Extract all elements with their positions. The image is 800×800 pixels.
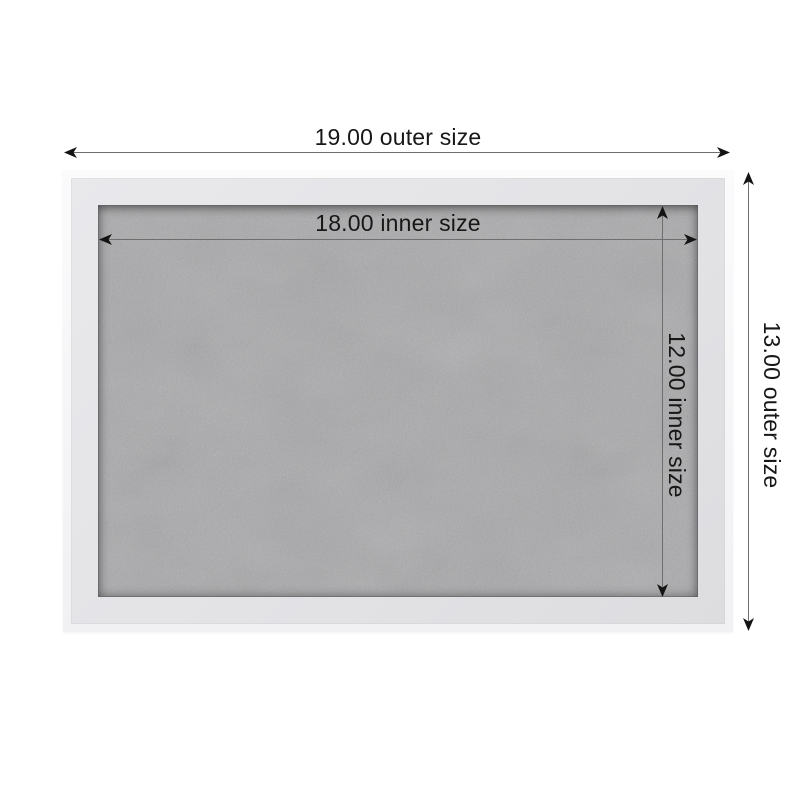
- frame-moulding: [71, 178, 725, 624]
- board-inner-shadow: [98, 205, 698, 597]
- arrowhead-down-icon: [743, 618, 754, 631]
- dimension-diagram: 19.00 outer size 18.00 inner size 13.00 …: [0, 0, 800, 800]
- picture-frame: [63, 170, 733, 632]
- board-surface: [98, 205, 698, 597]
- inner-height-label: 12.00 inner size: [664, 332, 690, 498]
- outer-height-dimension-line: [743, 172, 754, 631]
- inner-width-label: 18.00 inner size: [98, 210, 698, 236]
- outer-width-label: 19.00 outer size: [63, 124, 733, 150]
- outer-height-label: 13.00 outer size: [759, 322, 785, 489]
- arrowhead-up-icon: [743, 172, 754, 185]
